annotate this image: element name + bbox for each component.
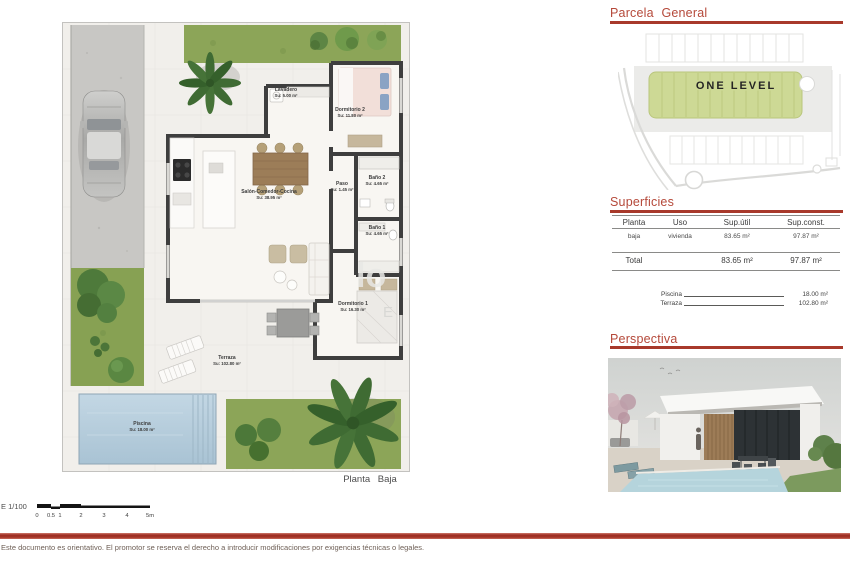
extra-value: 18.00 m²: [786, 291, 828, 298]
watermark-text: lo: [356, 257, 386, 296]
dotted-line: [684, 296, 784, 297]
table-cell: 83.65 m²: [706, 233, 768, 240]
floor-plan-graphic: [63, 23, 409, 471]
plot-notch: [800, 77, 815, 92]
table-cell: 97.87 m²: [772, 233, 840, 240]
section-rule: [610, 21, 843, 24]
lower-parcels: [670, 136, 803, 164]
scale-label: E 1/100: [1, 502, 27, 511]
scale-tick: 3: [97, 513, 111, 519]
section-rule: [610, 210, 843, 213]
scale-bar: [36, 503, 152, 511]
extra-row-terraza: Terraza 102.80 m²: [656, 298, 828, 307]
plan-caption: Planta Baja: [330, 474, 410, 485]
section-title-superficies: Superficies: [610, 195, 845, 209]
room-area: Su: 1.45 m²: [325, 187, 359, 192]
table-cell: vivienda: [658, 233, 702, 240]
col-header: Sup.const.: [772, 218, 840, 227]
extra-value: 102.80 m²: [786, 300, 828, 307]
room-area: Su: 11.80 m²: [325, 113, 375, 118]
table-cell: baja: [614, 233, 654, 240]
villa: [660, 386, 824, 460]
room-area: Su: 4.65 m²: [357, 231, 397, 236]
room-area: Su: 16.30 m²: [328, 307, 378, 312]
brochure-page: Lavadero Su: 5.00 m² Dormitorio 2 Su: 11…: [0, 0, 850, 572]
scale-tick: 4: [120, 513, 134, 519]
room-label-lavadero: Lavadero Su: 5.00 m²: [261, 87, 311, 98]
dining-table: [253, 143, 308, 195]
footer-red-bar: [0, 533, 850, 539]
room-area: Su: 102.80 m²: [202, 361, 252, 366]
total-value: 83.65 m²: [706, 256, 768, 265]
footer-disclaimer: Este documento es orientativo. El promot…: [1, 543, 841, 552]
roundabout: [686, 172, 703, 189]
extra-row-piscina: Piscina 18.00 m²: [656, 289, 828, 298]
room-label-terraza: Terraza Su: 102.80 m²: [202, 355, 252, 366]
room-area: Su: 18.00 m²: [117, 427, 167, 432]
plot-label: ONE LEVEL: [696, 80, 776, 92]
scale-tick: 0: [30, 513, 44, 519]
scale-tick: 2: [74, 513, 88, 519]
room-area: Su: 38.95 m²: [234, 195, 304, 200]
one-level-plot: [649, 72, 802, 118]
section-rule: [610, 346, 843, 349]
person: [696, 434, 701, 450]
extra-areas: Piscina 18.00 m² Terraza 102.80 m²: [656, 289, 828, 307]
room-area: Su: 5.00 m²: [261, 93, 311, 98]
scale-tick: 5m: [143, 513, 157, 519]
watermark-text: E: [383, 304, 393, 321]
room-area: Su: 4.65 m²: [357, 181, 397, 186]
col-header: Planta: [614, 218, 654, 227]
col-header: Uso: [658, 218, 702, 227]
floor-plan-panel: Lavadero Su: 5.00 m² Dormitorio 2 Su: 11…: [62, 22, 410, 472]
room-label-salon: Salón-Comedor-Cocina Su: 38.95 m²: [234, 189, 304, 200]
section-title-perspectiva: Perspectiva: [610, 332, 845, 346]
room-label-bano2: Baño 2 Su: 4.65 m²: [357, 175, 397, 186]
col-header: Sup.útil: [706, 218, 768, 227]
room-label-dormitorio2: Dormitorio 2 Su: 11.80 m²: [325, 107, 375, 118]
total-label: Total: [614, 256, 654, 265]
dotted-line: [684, 305, 784, 306]
room-label-piscina: Piscina Su: 18.00 m²: [117, 421, 167, 432]
table-line: [612, 228, 840, 229]
section-title-parcela: Parcela General: [610, 6, 845, 20]
room-label-paso: Paso Su: 1.45 m²: [325, 181, 359, 192]
table-line: [612, 252, 840, 253]
superficies-table: Planta Uso Sup.útil Sup.const. baja vivi…: [612, 215, 842, 273]
room-label-bano1: Baño 1 Su: 4.65 m²: [357, 225, 397, 236]
scale-tick: 1: [53, 513, 67, 519]
upper-parcels: [646, 34, 803, 62]
table-line: [612, 270, 840, 271]
perspective-render: [608, 358, 841, 492]
car-top-view: [78, 90, 130, 202]
site-plan-graphic: ONE LEVEL: [618, 30, 845, 190]
total-value: 97.87 m²: [772, 256, 840, 265]
room-label-dormitorio1: Dormitorio 1 Su: 16.30 m²: [328, 301, 378, 312]
extra-label: Terraza: [656, 300, 682, 307]
extra-label: Piscina: [656, 291, 682, 298]
table-line: [612, 215, 840, 216]
